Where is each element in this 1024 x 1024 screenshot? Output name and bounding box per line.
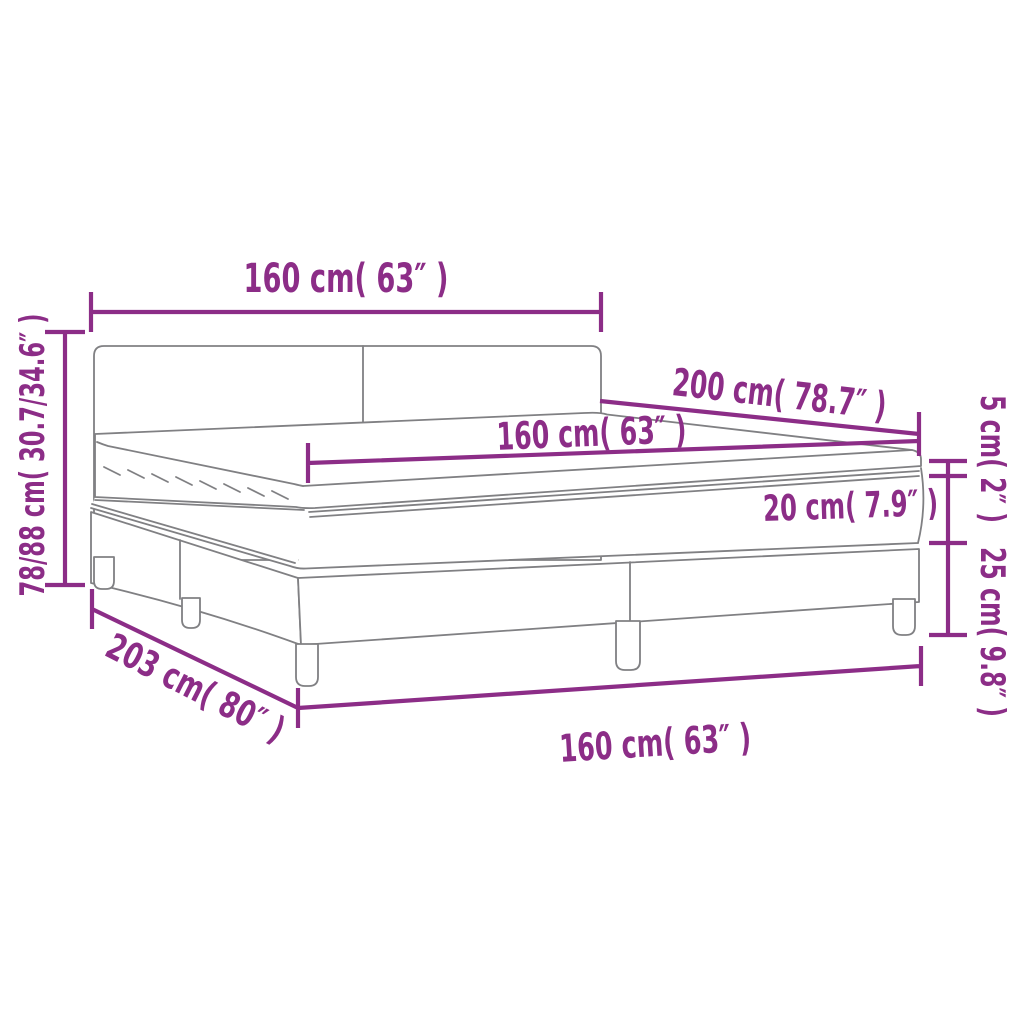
bed-leg-front-middle <box>616 621 640 670</box>
label-headboard-width: 160 cm( 63″ ) <box>244 256 449 302</box>
diagram-svg: 160 cm( 63″ ) 78/88 cm( 30.7/34.6″ ) 200… <box>0 0 1024 1024</box>
label-total-height: 78/88 cm( 30.7/34.6″ ) <box>13 314 53 597</box>
dim-headboard-width: 160 cm( 63″ ) <box>91 256 601 332</box>
bed-leg-mid-left <box>182 598 200 628</box>
dim-right-bracket: 5 cm( 2″ ) 25 cm( 9.8″ ) <box>929 395 1012 717</box>
label-bed-width: 160 cm( 63″ ) <box>558 715 752 771</box>
dim-mattress-height: 20 cm( 7.9″ ) <box>762 483 938 530</box>
bed-dimension-diagram: 160 cm( 63″ ) 78/88 cm( 30.7/34.6″ ) 200… <box>0 0 1024 1024</box>
bed-leg-front-right <box>893 599 915 635</box>
bed-leg-back-left <box>94 557 114 589</box>
label-base-height: 25 cm( 9.8″ ) <box>972 547 1012 717</box>
dim-bed-width: 160 cm( 63″ ) <box>298 646 921 771</box>
label-topper-height: 5 cm( 2″ ) <box>972 395 1012 523</box>
bed-leg-front-left <box>296 644 318 686</box>
label-mattress-width: 160 cm( 63″ ) <box>496 407 688 459</box>
dim-total-height: 78/88 cm( 30.7/34.6″ ) <box>13 314 85 597</box>
label-mattress-height: 20 cm( 7.9″ ) <box>762 483 938 530</box>
